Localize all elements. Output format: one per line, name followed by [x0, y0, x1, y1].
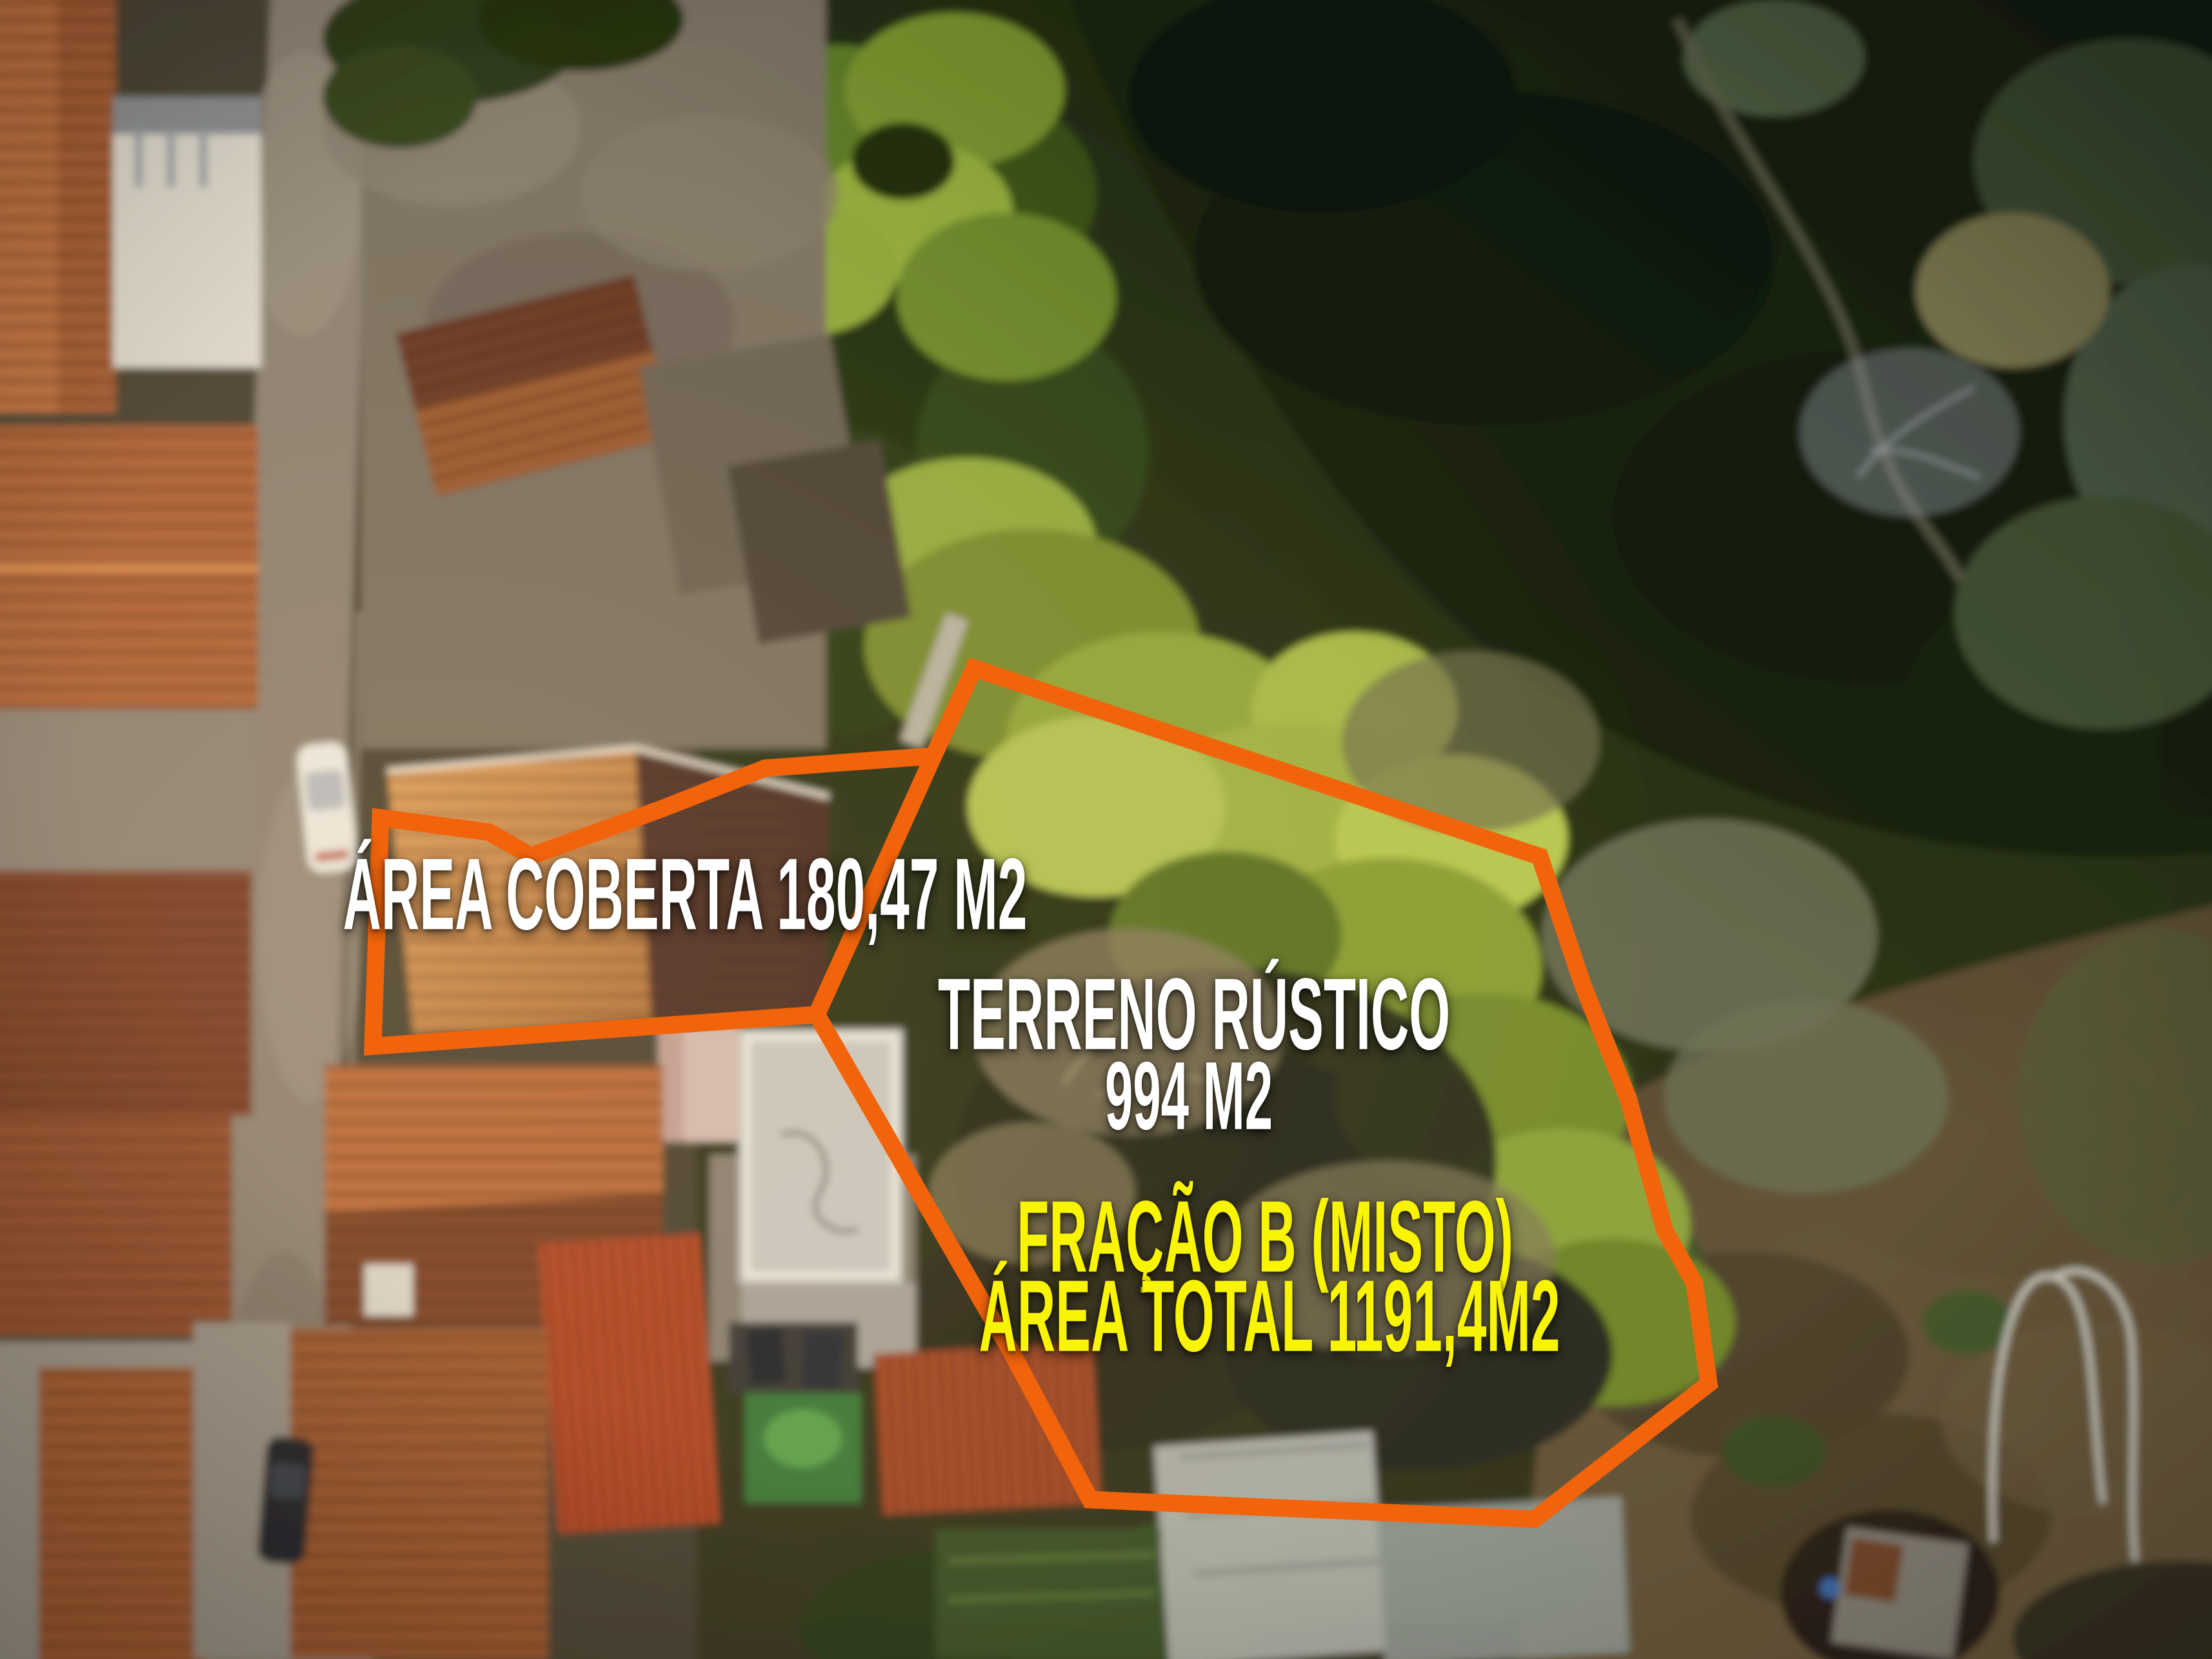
aerial-photo: ÁREA COBERTA 180,47 M2 TERRENO RÚSTICO 9… — [0, 0, 2212, 1659]
label-covered-area: ÁREA COBERTA 180,47 M2 — [343, 837, 1028, 953]
scene-svg — [0, 0, 2212, 1659]
label-terrain-area: 994 M2 — [1105, 1040, 1273, 1152]
vignette-overlay — [0, 0, 2212, 1659]
label-total-area: ÁREA TOTAL 1191,4M2 — [979, 1258, 1560, 1375]
photo-illustration — [0, 0, 2212, 1659]
